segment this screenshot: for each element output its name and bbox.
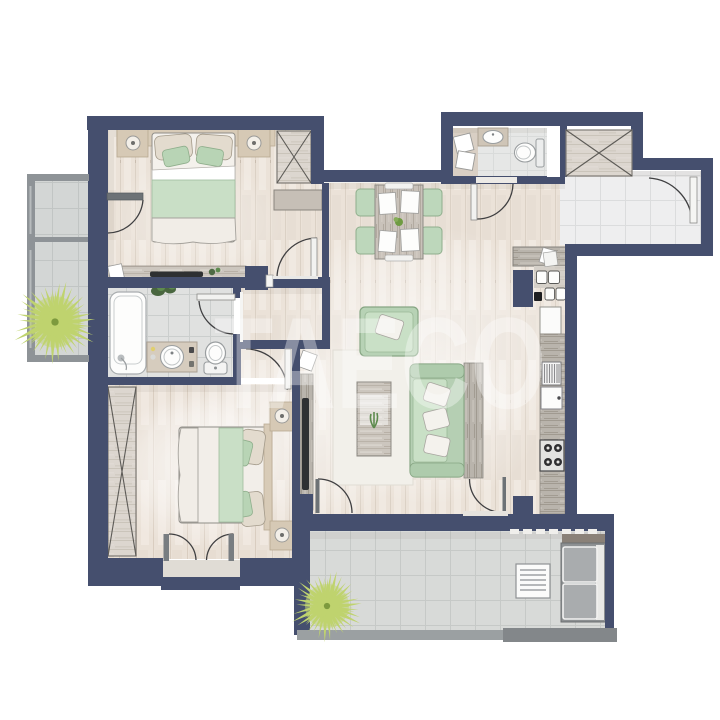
svg-text:TAECO: TAECO xyxy=(214,290,546,436)
